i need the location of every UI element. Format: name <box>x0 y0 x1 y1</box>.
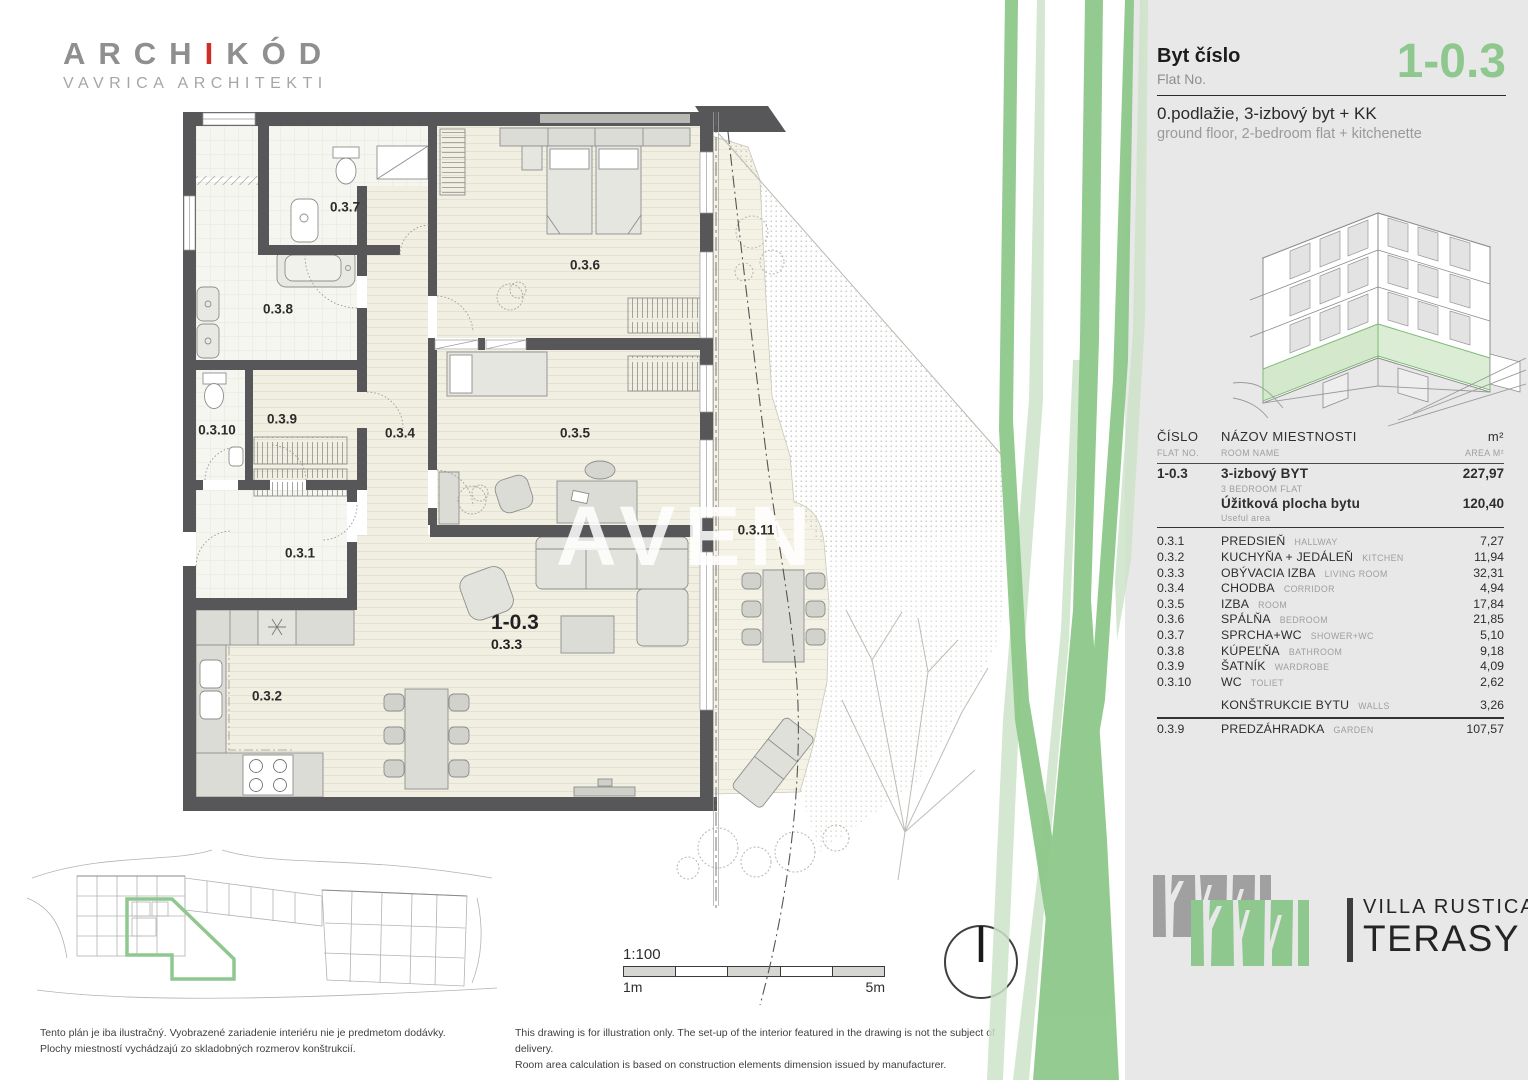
table-row: 0.3.2KUCHYŇA + JEDÁLEŇKITCHEN11,94 <box>1157 550 1504 566</box>
room-area: 32,31 <box>1473 566 1504 581</box>
room-number: 0.3.4 <box>1157 581 1221 596</box>
disclaimer-sk-line1: Tento plán je iba ilustračný. Vyobrazené… <box>40 1026 510 1042</box>
room-number: 0.3.3 <box>1157 566 1221 581</box>
col-name-en: ROOM NAME <box>1221 446 1465 461</box>
room-name-en: WARDROBE <box>1275 662 1330 672</box>
room-area: 21,85 <box>1473 612 1504 627</box>
table-row: 0.3.6SPÁLŇABEDROOM21,85 <box>1157 612 1504 628</box>
room-area: 7,27 <box>1480 534 1504 549</box>
room-name-sk: WC <box>1221 675 1242 689</box>
disclaimer-sk-line2: Plochy miestností vychádzajú zo skladobn… <box>40 1042 510 1058</box>
archikod-subtitle: VAVRICA ARCHITEKTI <box>63 75 334 93</box>
summary-useful-caption: Useful area <box>1157 512 1504 523</box>
table-row: 0.3.4CHODBACORRIDOR4,94 <box>1157 581 1504 597</box>
terrace-garden <box>712 134 1007 852</box>
room-name-en: BATHROOM <box>1289 647 1342 657</box>
room-name-sk: SPRCHA+WC <box>1221 628 1302 642</box>
col-name-sk: NÁZOV MIESTNOSTI <box>1221 430 1465 445</box>
summary-flat-row: 1-0.3 3-izbový BYT 227,97 <box>1157 467 1504 482</box>
room-name-sk: KUCHYŇA + JEDÁLEŇ <box>1221 550 1353 564</box>
room-name-en: SHOWER+WC <box>1311 631 1374 641</box>
table-row: 0.3.10WCTOLIET2,62 <box>1157 675 1504 691</box>
archikod-wordmark: ARCHIKÓD <box>63 36 334 72</box>
room-rows: 0.3.1PREDSIEŇHALLWAY7,270.3.2KUCHYŇA + J… <box>1157 534 1504 690</box>
room-area: 5,10 <box>1480 628 1504 643</box>
room-number: 0.3.10 <box>1157 675 1221 690</box>
table-row: 0.3.3OBÝVACIA IZBALIVING ROOM32,31 <box>1157 566 1504 582</box>
room-number: 0.3.1 <box>1157 534 1221 549</box>
room-name-en: KITCHEN <box>1362 553 1403 563</box>
room-name-sk: OBÝVACIA IZBA <box>1221 566 1316 580</box>
archikod-part1: ARCH <box>63 36 205 71</box>
flat-description-en: ground floor, 2-bedroom flat + kitchenet… <box>1157 126 1422 142</box>
room-number: 0.3.5 <box>1157 597 1221 612</box>
room-name-sk: PREDSIEŇ <box>1221 534 1285 548</box>
archikod-part2: KÓD <box>226 36 334 71</box>
villa-rustica-text: VILLA RUSTICA <box>1363 896 1528 919</box>
room-area: 4,09 <box>1480 659 1504 674</box>
room-number: 0.3.9 <box>1157 659 1221 674</box>
table-row: 0.3.8KÚPEĽŇABATHROOM9,18 <box>1157 644 1504 660</box>
floor-plan-drawing <box>150 95 1020 1010</box>
unit-room-number: 0.3.3 <box>491 637 539 652</box>
disclaimer-en: This drawing is for illustration only. T… <box>515 1026 995 1073</box>
disclaimer-en-line2: Room area calculation is based on constr… <box>515 1058 995 1074</box>
disclaimer-sk: Tento plán je iba ilustračný. Vyobrazené… <box>40 1026 510 1058</box>
table-row: 0.3.9ŠATNÍKWARDROBE4,09 <box>1157 659 1504 675</box>
table-header: ČÍSLOFLAT NO. NÁZOV MIESTNOSTIROOM NAME … <box>1157 430 1504 460</box>
table-row: 0.3.1PREDSIEŇHALLWAY7,27 <box>1157 534 1504 550</box>
logo-divider <box>1347 898 1353 962</box>
villa-rustica-logo-mark <box>1151 872 1341 970</box>
summary-flat-caption: 3 BEDROOM FLAT <box>1157 483 1504 494</box>
archikod-accent-letter: I <box>205 36 227 71</box>
garden-row: 0.3.9 PREDZÁHRADKAGARDEN 107,57 <box>1157 722 1504 738</box>
floorplan-sheet: ARCHIKÓD VAVRICA ARCHITEKTI <box>0 0 1528 1080</box>
col-area-sk: m² <box>1465 430 1504 445</box>
room-number: 0.3.8 <box>1157 644 1221 659</box>
room-name-sk: ŠATNÍK <box>1221 659 1266 673</box>
terasy-text: TERASY <box>1363 918 1520 960</box>
room-area: 11,94 <box>1474 550 1504 565</box>
room-name-sk: IZBA <box>1221 597 1249 611</box>
room-number: 0.3.6 <box>1157 612 1221 627</box>
room-name-en: BEDROOM <box>1280 615 1328 625</box>
room-name-en: ROOM <box>1258 600 1287 610</box>
room-name-en: LIVING ROOM <box>1325 569 1388 579</box>
flat-description-sk: 0.podlažie, 3-izbový byt + KK <box>1157 104 1377 124</box>
room-number: 0.3.7 <box>1157 628 1221 643</box>
table-row: 0.3.7SPRCHA+WCSHOWER+WC5,10 <box>1157 628 1504 644</box>
col-number-en: FLAT NO. <box>1157 446 1221 461</box>
room-area: 2,62 <box>1480 675 1504 690</box>
area-table: ČÍSLOFLAT NO. NÁZOV MIESTNOSTIROOM NAME … <box>1157 430 1504 738</box>
unit-label-block: 1-0.3 0.3.3 <box>491 612 539 652</box>
col-number-sk: ČÍSLO <box>1157 430 1221 445</box>
flat-number: 1-0.3 <box>1397 34 1506 89</box>
flat-label-en: Flat No. <box>1157 71 1206 87</box>
header-divider <box>1157 95 1506 96</box>
building-axon <box>1228 158 1528 430</box>
room-area: 9,18 <box>1480 644 1504 659</box>
table-row: 0.3.5IZBAROOM17,84 <box>1157 597 1504 613</box>
summary-useful-row: Úžitková plocha bytu 120,40 <box>1157 497 1504 512</box>
col-area-en: AREA M² <box>1465 446 1504 461</box>
room-name-en: CORRIDOR <box>1284 584 1335 594</box>
room-name-sk: SPÁLŇA <box>1221 612 1271 626</box>
room-name-en: HALLWAY <box>1294 537 1337 547</box>
room-name-sk: CHODBA <box>1221 581 1275 595</box>
info-panel: Byt číslo Flat No. 1-0.3 0.podlažie, 3-i… <box>1125 0 1528 1080</box>
room-name-en: TOLIET <box>1251 678 1284 688</box>
room-name-sk: KÚPEĽŇA <box>1221 644 1280 658</box>
room-area: 17,84 <box>1473 597 1504 612</box>
room-area: 4,94 <box>1480 581 1504 596</box>
walls-row: KONŠTRUKCIE BYTUWALLS 3,26 <box>1157 698 1504 714</box>
unit-flat-number: 1-0.3 <box>491 612 539 634</box>
archikod-logo: ARCHIKÓD VAVRICA ARCHITEKTI <box>63 36 334 93</box>
disclaimer-en-line1: This drawing is for illustration only. T… <box>515 1026 995 1058</box>
flat-label-sk: Byt číslo <box>1157 45 1240 68</box>
room-number: 0.3.2 <box>1157 550 1221 565</box>
